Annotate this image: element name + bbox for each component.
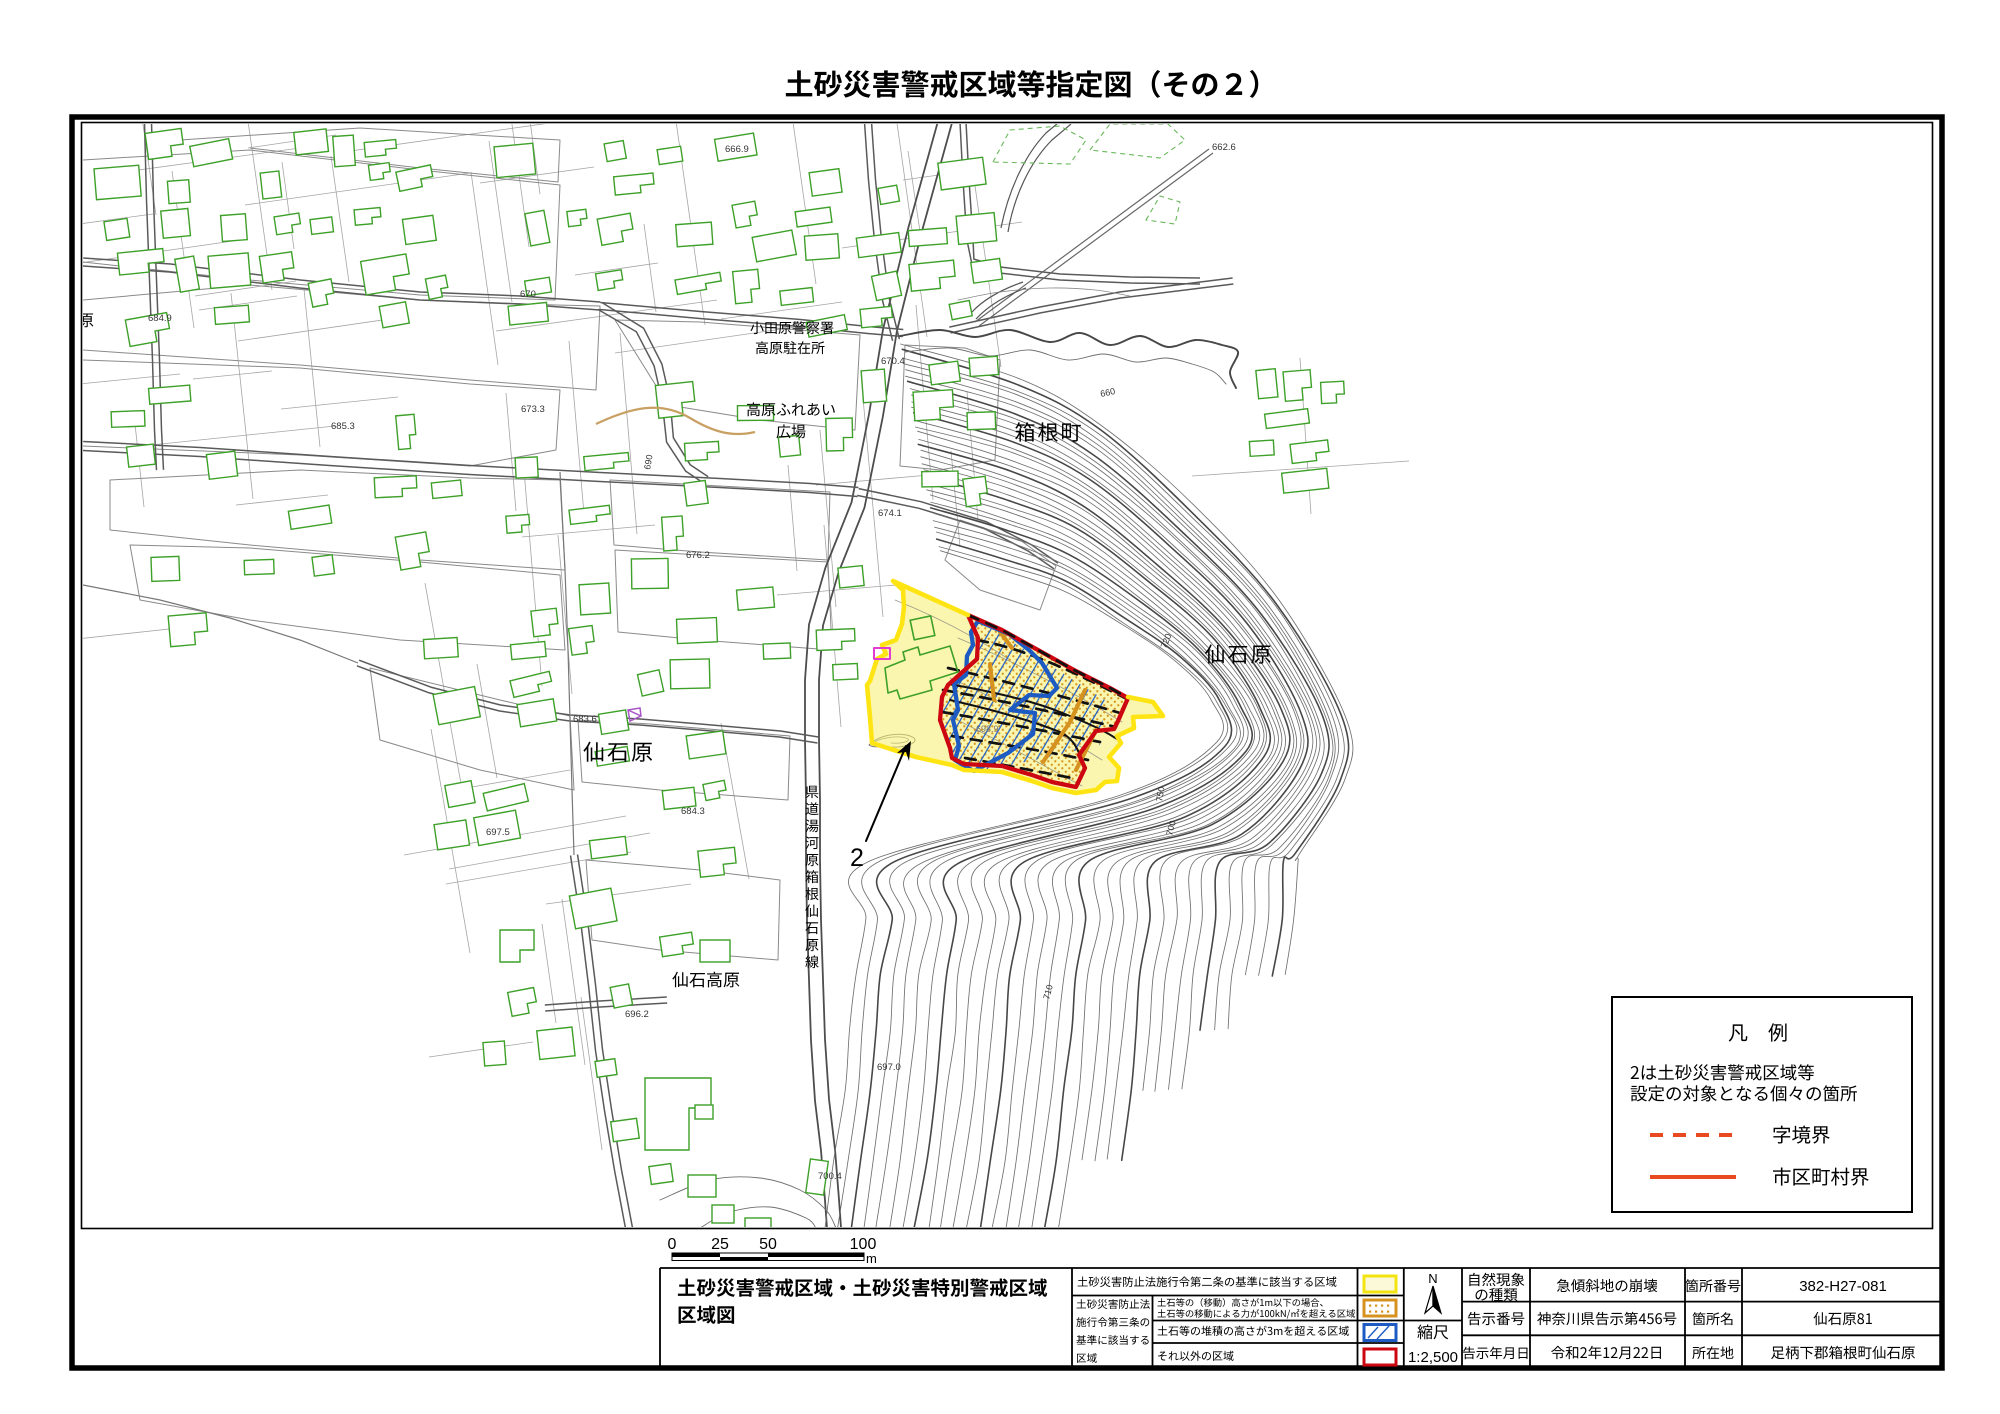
svg-text:2: 2 <box>850 844 864 872</box>
svg-text:666.9: 666.9 <box>725 144 749 155</box>
svg-text:382-H27-081: 382-H27-081 <box>1799 1278 1887 1295</box>
svg-text:670: 670 <box>520 289 536 300</box>
svg-text:1:2,500: 1:2,500 <box>1408 1349 1458 1366</box>
svg-text:685.3: 685.3 <box>331 421 355 432</box>
svg-text:670.4: 670.4 <box>881 356 905 367</box>
svg-text:696.2: 696.2 <box>625 1009 649 1020</box>
svg-text:0: 0 <box>668 1236 677 1253</box>
svg-text:660: 660 <box>1099 386 1116 399</box>
svg-text:684.3: 684.3 <box>681 806 705 817</box>
svg-text:697.5: 697.5 <box>486 827 510 838</box>
svg-text:674.1: 674.1 <box>878 508 902 519</box>
svg-text:662.6: 662.6 <box>1212 142 1236 153</box>
svg-text:683.6: 683.6 <box>573 714 597 725</box>
svg-text:50: 50 <box>759 1236 777 1253</box>
svg-text:710: 710 <box>1041 983 1055 1000</box>
svg-text:684.9: 684.9 <box>148 313 172 324</box>
svg-text:m: m <box>866 1251 877 1266</box>
svg-text:697.0: 697.0 <box>877 1062 901 1073</box>
svg-text:676.2: 676.2 <box>686 550 710 561</box>
svg-text:700.4: 700.4 <box>818 1171 842 1182</box>
svg-text:750: 750 <box>1154 786 1166 803</box>
svg-text:698.9: 698.9 <box>976 724 999 734</box>
svg-text:700: 700 <box>1164 819 1178 836</box>
svg-text:N: N <box>1428 1271 1437 1286</box>
svg-text:25: 25 <box>711 1236 729 1253</box>
svg-text:673.3: 673.3 <box>521 404 545 415</box>
svg-text:690: 690 <box>642 454 654 471</box>
